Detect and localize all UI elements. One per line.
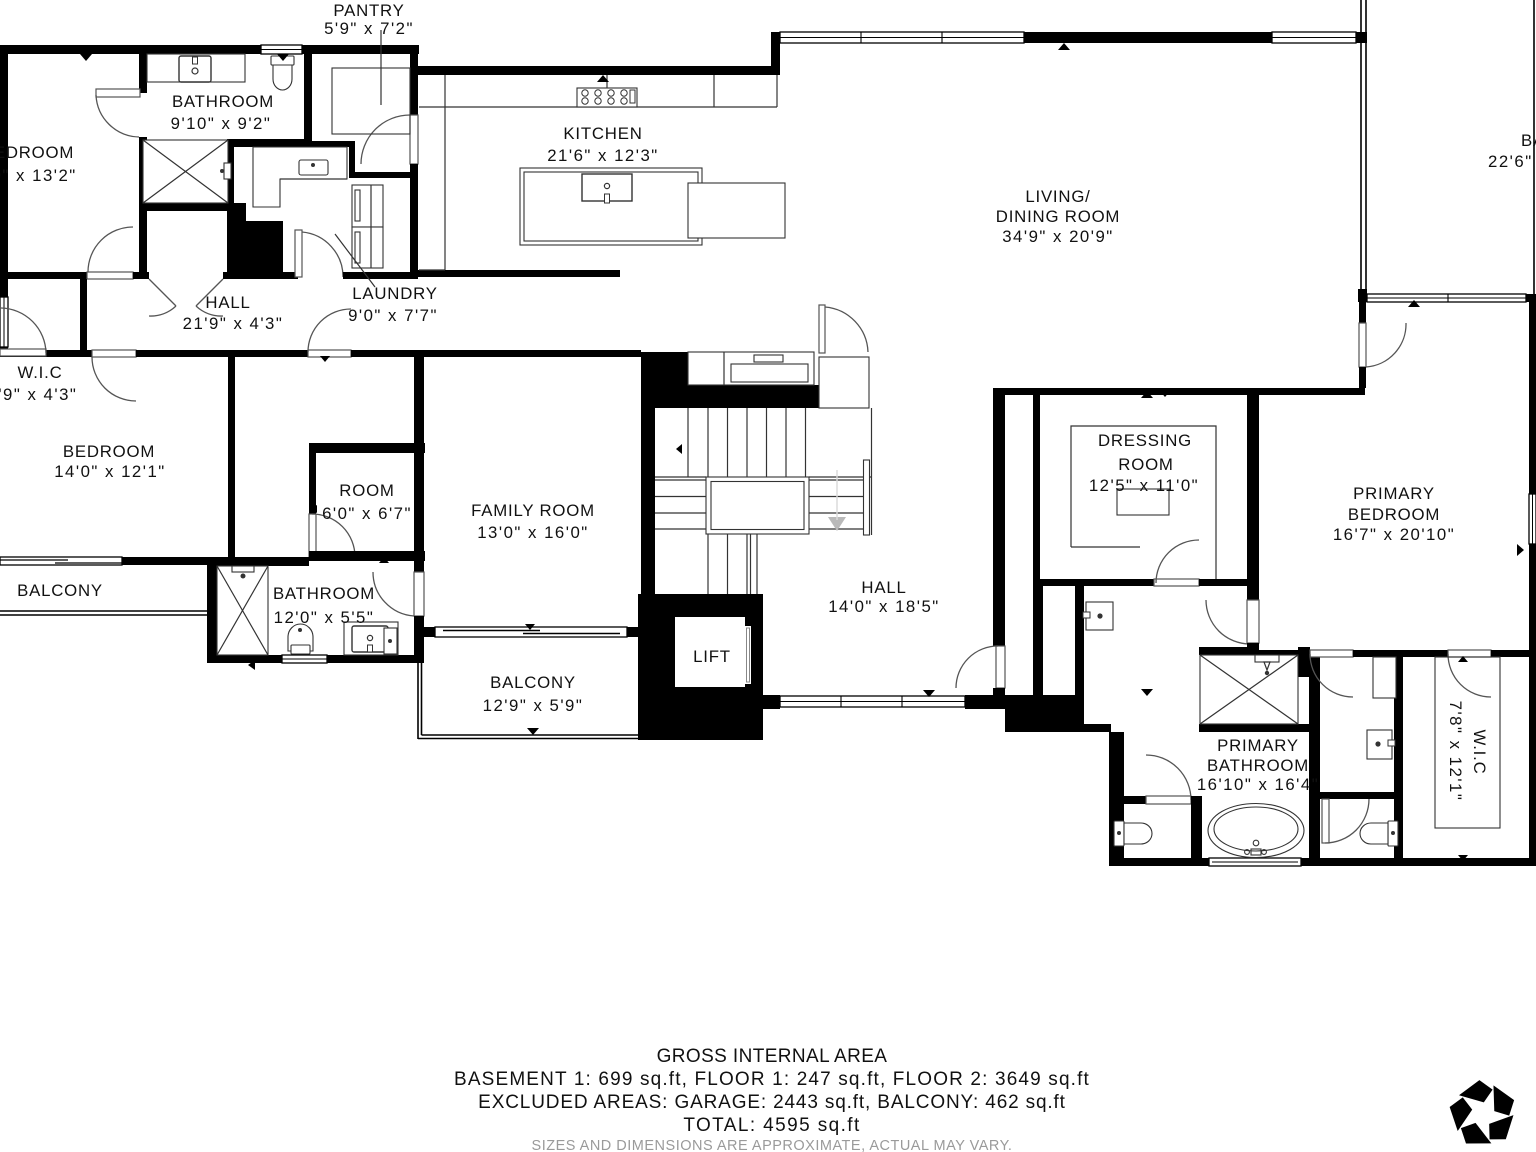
svg-text:BALCONY: BALCONY: [17, 581, 103, 600]
svg-text:HALL: HALL: [205, 293, 250, 312]
svg-text:14'0" x 18'5": 14'0" x 18'5": [828, 597, 940, 616]
svg-text:5'9" x 7'2": 5'9" x 7'2": [324, 19, 414, 38]
svg-text:FAMILY ROOM: FAMILY ROOM: [471, 501, 595, 520]
svg-text:LAUNDRY: LAUNDRY: [352, 284, 438, 303]
svg-text:TOTAL: 4595 sq.ft: TOTAL: 4595 sq.ft: [683, 1115, 860, 1136]
svg-text:6'0" x 6'7": 6'0" x 6'7": [322, 504, 412, 523]
svg-text:21'9" x 4'3": 21'9" x 4'3": [183, 314, 284, 333]
svg-text:34'9" x 20'9": 34'9" x 20'9": [1002, 227, 1114, 246]
svg-text:22'6" x 5'9": 22'6" x 5'9": [1488, 152, 1536, 171]
svg-text:KITCHEN: KITCHEN: [563, 124, 642, 143]
svg-text:DRESSING: DRESSING: [1098, 431, 1192, 450]
svg-text:W.I.C: W.I.C: [17, 363, 62, 382]
svg-text:DINING ROOM: DINING ROOM: [996, 207, 1120, 226]
svg-text:SIZES AND DIMENSIONS ARE APPRO: SIZES AND DIMENSIONS ARE APPROXIMATE, AC…: [532, 1138, 1013, 1152]
svg-text:10'9" x 4'3": 10'9" x 4'3": [0, 385, 77, 404]
svg-text:LIFT: LIFT: [693, 647, 731, 666]
svg-text:13'0" x 16'0": 13'0" x 16'0": [477, 523, 589, 542]
svg-text:12'9" x 5'9": 12'9" x 5'9": [483, 696, 584, 715]
svg-text:BATHROOM: BATHROOM: [1207, 756, 1309, 775]
svg-text:14'0" x 13'2": 14'0" x 13'2": [0, 166, 77, 185]
svg-text:7'8" x 12'1": 7'8" x 12'1": [1446, 701, 1465, 802]
svg-text:21'6" x 12'3": 21'6" x 12'3": [547, 146, 659, 165]
svg-text:HALL: HALL: [861, 578, 906, 597]
svg-text:16'7" x 20'10": 16'7" x 20'10": [1333, 525, 1455, 544]
svg-text:LIVING/: LIVING/: [1025, 187, 1090, 206]
svg-text:W.I.C: W.I.C: [1470, 729, 1489, 774]
svg-text:ROOM: ROOM: [339, 481, 394, 500]
svg-text:ROOM: ROOM: [1118, 455, 1173, 474]
svg-text:BATHROOM: BATHROOM: [172, 92, 274, 111]
svg-text:EXCLUDED AREAS: GARAGE: 2443 s: EXCLUDED AREAS: GARAGE: 2443 sq.ft, BALC…: [478, 1092, 1066, 1113]
svg-text:BASEMENT 1: 699 sq.ft, FLOOR 1: BASEMENT 1: 699 sq.ft, FLOOR 1: 247 sq.f…: [454, 1069, 1090, 1090]
svg-text:BEDROOM: BEDROOM: [1348, 505, 1440, 524]
svg-text:9'0" x 7'7": 9'0" x 7'7": [348, 306, 438, 325]
svg-text:BEDROOM: BEDROOM: [63, 442, 155, 461]
svg-text:12'0" x 5'5": 12'0" x 5'5": [274, 608, 375, 627]
svg-text:PRIMARY: PRIMARY: [1217, 736, 1299, 755]
svg-text:PANTRY: PANTRY: [333, 1, 404, 20]
svg-text:GROSS INTERNAL AREA: GROSS INTERNAL AREA: [657, 1046, 888, 1067]
svg-text:BALCONY: BALCONY: [490, 673, 576, 692]
svg-text:BALCONY: BALCONY: [1521, 131, 1536, 150]
svg-text:BEDROOM: BEDROOM: [0, 143, 74, 162]
svg-text:12'5" x 11'0": 12'5" x 11'0": [1089, 476, 1199, 495]
svg-text:16'10" x 16'4": 16'10" x 16'4": [1197, 775, 1319, 794]
svg-text:9'10" x 9'2": 9'10" x 9'2": [171, 114, 272, 133]
svg-text:BATHROOM: BATHROOM: [273, 584, 375, 603]
svg-text:14'0" x 12'1": 14'0" x 12'1": [54, 462, 166, 481]
svg-text:PRIMARY: PRIMARY: [1353, 484, 1435, 503]
